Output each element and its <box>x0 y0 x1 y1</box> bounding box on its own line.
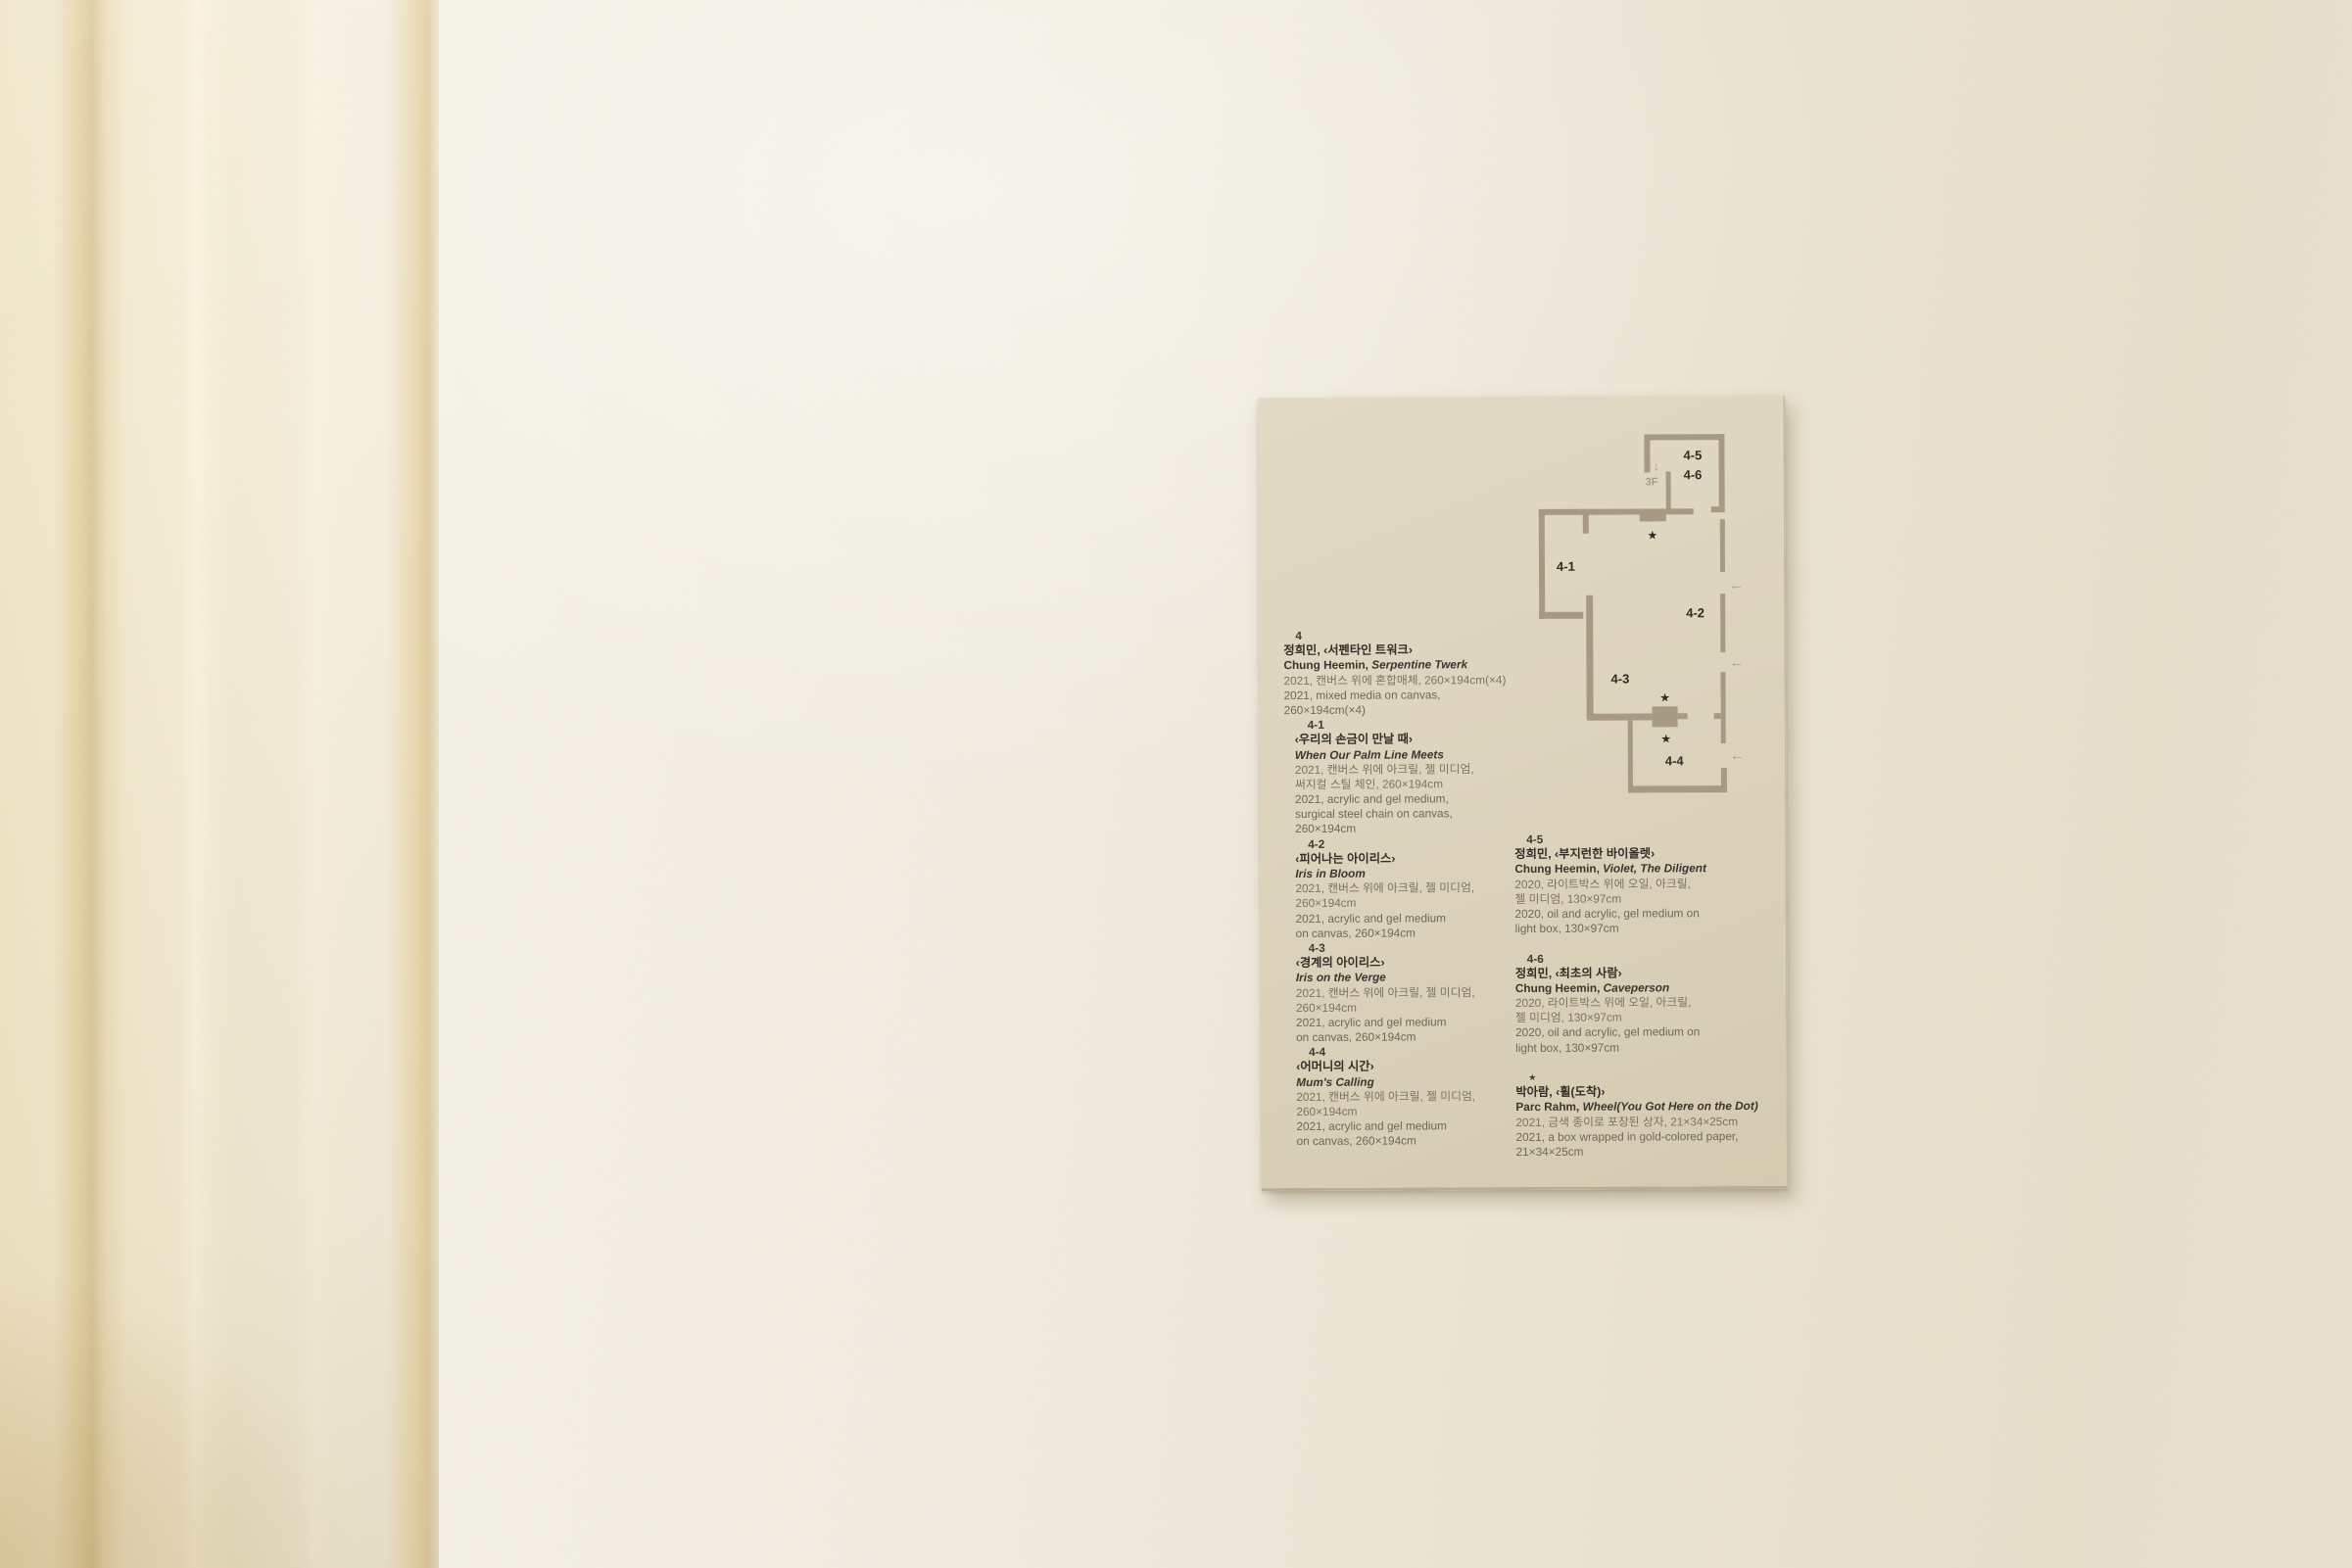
artwork-title-korean: 박아람, ‹휠(도착)› <box>1515 1084 1757 1100</box>
artwork-caption-english: on canvas, 260×194cm <box>1285 1029 1508 1045</box>
artwork-number: 4-6 <box>1515 950 1757 966</box>
exhibition-label-card: ↓ 3F 4-5 4-6 4-1 4-2 4-3 4-4 ★ ★ ★ ← ← ←… <box>1258 396 1789 1191</box>
artwork-star-marker: ★ <box>1647 528 1657 542</box>
artwork-caption-english: 2021, acrylic and gel medium, <box>1284 791 1507 807</box>
artwork-caption-korean: 260×194cm <box>1285 1000 1508 1016</box>
artwork-title-korean: ‹어머니의 시간› <box>1285 1060 1508 1075</box>
artwork-star-marker: ★ <box>1659 690 1670 704</box>
artwork-title-english: Iris on the Verge <box>1285 970 1508 985</box>
artwork-title-english: When Our Palm Line Meets <box>1284 747 1507 763</box>
stair-down-arrow-icon: ↓ <box>1654 458 1660 473</box>
artwork-caption-english: 260×194cm <box>1284 822 1507 837</box>
photo-stage: ↓ 3F 4-5 4-6 4-1 4-2 4-3 4-4 ★ ★ ★ ← ← ←… <box>0 0 2352 1568</box>
artwork-caption-english: 2021, acrylic and gel medium <box>1285 1015 1508 1030</box>
artwork-title-korean: 정희민, ‹최초의 사람› <box>1515 966 1757 981</box>
artwork-title-korean: ‹경계의 아이리스› <box>1285 955 1508 971</box>
artwork-caption-korean: 2021, 캔버스 위에 아크릴, 젤 미디엄, <box>1284 762 1507 778</box>
artwork-number: 4-5 <box>1514 832 1756 847</box>
artwork-title-korean: ‹피어나는 아이리스› <box>1284 851 1507 867</box>
spacer-line <box>1515 1055 1757 1070</box>
artwork-star-marker: ★ <box>1660 732 1671 745</box>
artwork-sub-number: 4-4 <box>1285 1044 1508 1060</box>
artwork-title-english: Iris in Bloom <box>1284 866 1507 881</box>
artwork-caption-korean: 2020, 라이트박스 위에 오일, 아크릴, <box>1514 877 1756 892</box>
artwork-caption-english: 2021, a box wrapped in gold-colored pape… <box>1516 1129 1758 1145</box>
artwork-sub-number: 4-3 <box>1285 940 1508 956</box>
room-label-4-1: 4-1 <box>1557 559 1575 574</box>
artwork-caption-english: 260×194cm(×4) <box>1284 702 1507 718</box>
spacer-line <box>1515 935 1757 951</box>
artwork-title-korean: 정희민, ‹서펜타인 트워크› <box>1283 642 1506 658</box>
artwork-caption-korean: 2021, 캔버스 위에 아크릴, 젤 미디엄, <box>1285 1089 1508 1105</box>
artwork-list-left-column: 4정희민, ‹서펜타인 트워크›Chung Heemin, Serpentine… <box>1283 628 1508 1150</box>
artwork-caption-english: 21×34×25cm <box>1516 1144 1758 1160</box>
entrance-arrow-icon: ← <box>1729 654 1744 671</box>
artwork-caption-korean: 2021, 캔버스 위에 혼합매체, 260×194cm(×4) <box>1283 673 1506 689</box>
artwork-title-english: Chung Heemin, Violet, The Diligent <box>1514 861 1756 877</box>
artwork-caption-korean: 260×194cm <box>1285 1104 1508 1119</box>
room-label-4-6: 4-6 <box>1684 467 1703 482</box>
artwork-number: 4 <box>1283 628 1506 643</box>
stair-floor-label: 3F <box>1646 476 1658 488</box>
entrance-arrow-icon: ← <box>1729 577 1744 594</box>
artwork-sub-number: 4-1 <box>1284 717 1507 733</box>
artwork-caption-korean: 2021, 금색 종이로 포장된 상자, 21×34×25cm <box>1515 1115 1757 1130</box>
artwork-caption-english: surgical steel chain on canvas, <box>1284 806 1507 822</box>
artwork-caption-english: 2020, oil and acrylic, gel medium on <box>1515 906 1757 922</box>
artwork-caption-english: 2021, acrylic and gel medium <box>1285 911 1508 927</box>
artwork-caption-korean: 써지컬 스틸 체인, 260×194cm <box>1284 777 1507 792</box>
artwork-list-right-column: 4-5정희민, ‹부지런한 바이올렛›Chung Heemin, Violet,… <box>1514 832 1758 1160</box>
artwork-caption-korean: 2021, 캔버스 위에 아크릴, 젤 미디엄, <box>1285 985 1508 1001</box>
artwork-caption-english: light box, 130×97cm <box>1515 921 1757 936</box>
artwork-sub-number: 4-2 <box>1284 836 1507 852</box>
artwork-caption-english: 2021, acrylic and gel medium <box>1285 1118 1508 1134</box>
room-label-4-2: 4-2 <box>1686 605 1704 620</box>
artwork-title-korean: ‹우리의 손금이 만날 때› <box>1284 732 1507 747</box>
floor-plan: ↓ 3F 4-5 4-6 4-1 4-2 4-3 4-4 ★ ★ ★ ← ← ← <box>1497 420 1793 805</box>
artwork-caption-korean: 젤 미디엄, 130×97cm <box>1514 891 1756 907</box>
artwork-caption-korean: 2021, 캔버스 위에 아크릴, 젤 미디엄, <box>1284 880 1507 896</box>
door-frame-molding <box>0 0 439 1568</box>
artwork-caption-korean: 2020, 라이트박스 위에 오일, 아크릴, <box>1515 995 1757 1011</box>
artwork-title-english: Chung Heemin, Caveperson <box>1515 980 1757 996</box>
artwork-caption-english: 2020, oil and acrylic, gel medium on <box>1515 1024 1757 1040</box>
artwork-title-korean: 정희민, ‹부지런한 바이올렛› <box>1514 846 1756 862</box>
artwork-title-english: Mum's Calling <box>1285 1074 1508 1090</box>
artwork-caption-english: on canvas, 260×194cm <box>1286 1133 1509 1149</box>
artwork-caption-english: 2021, mixed media on canvas, <box>1284 688 1507 703</box>
artwork-caption-korean: 젤 미디엄, 130×97cm <box>1515 1010 1757 1025</box>
room-label-4-5: 4-5 <box>1683 448 1702 462</box>
artwork-title-english: Parc Rahm, Wheel(You Got Here on the Dot… <box>1515 1099 1757 1115</box>
room-label-4-3: 4-3 <box>1610 672 1629 687</box>
unnumbered-star-marker: ★ <box>1515 1069 1757 1085</box>
artwork-title-english: Chung Heemin, Serpentine Twerk <box>1283 657 1506 673</box>
artwork-caption-korean: 260×194cm <box>1284 895 1507 911</box>
artwork-caption-english: light box, 130×97cm <box>1515 1040 1757 1056</box>
room-label-4-4: 4-4 <box>1665 753 1685 768</box>
entrance-arrow-icon: ← <box>1730 747 1745 764</box>
artwork-caption-english: on canvas, 260×194cm <box>1285 926 1508 941</box>
